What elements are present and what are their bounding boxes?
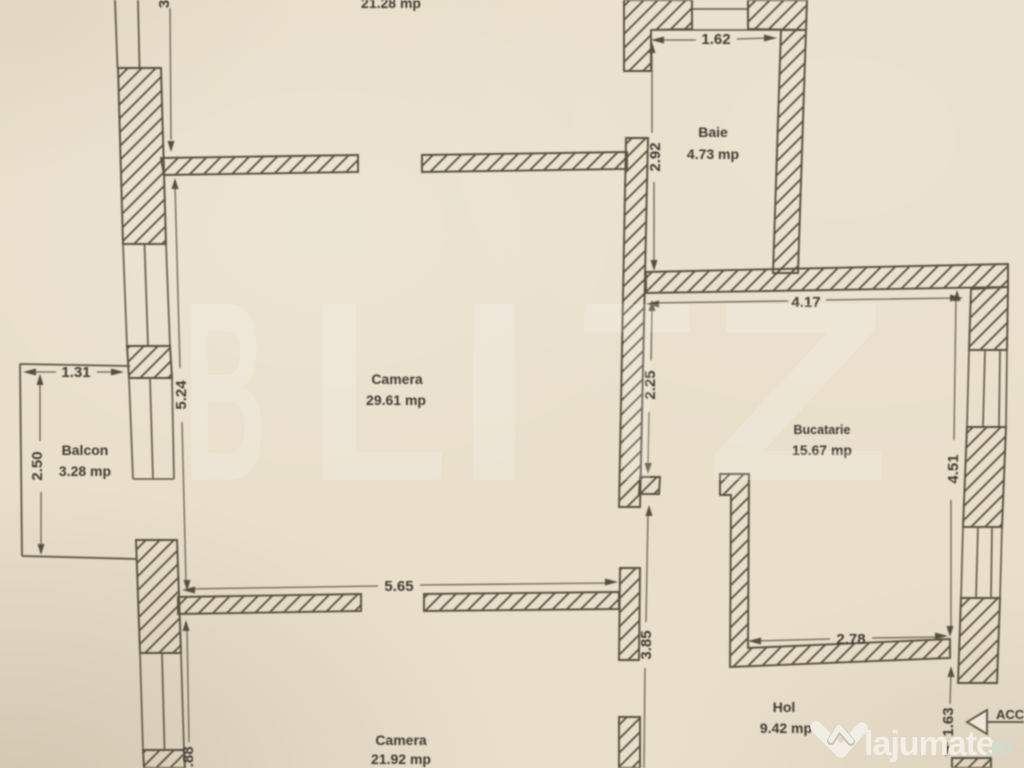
svg-text:I: I [453,249,535,535]
svg-text:B: B [183,249,266,535]
svg-text:.ro: .ro [985,734,1012,760]
svg-text:L: L [308,249,449,535]
svg-text:T: T [582,248,691,534]
svg-text:Z: Z [706,250,891,535]
svg-text:lajumate: lajumate [864,725,994,763]
